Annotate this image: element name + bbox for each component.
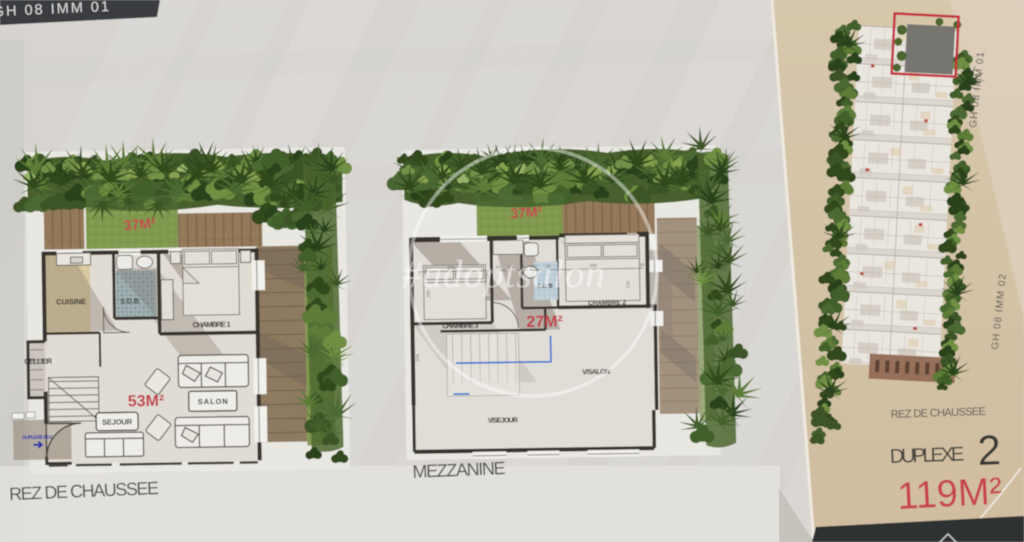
svg-text:37M²: 37M²	[123, 215, 156, 234]
svg-text:MEZZANINE: MEZZANINE	[412, 458, 506, 482]
svg-text:27M²: 27M²	[526, 313, 563, 331]
svg-text:2: 2	[977, 426, 1002, 474]
svg-text:V/SEJOUR: V/SEJOUR	[488, 417, 518, 424]
svg-text:#adoptsalon: #adoptsalon	[402, 253, 606, 296]
svg-text:270: 270	[626, 280, 631, 288]
svg-text:SALON: SALON	[198, 397, 228, 406]
svg-text:CHAMBRE 1: CHAMBRE 1	[193, 320, 231, 330]
svg-text:CELLIER: CELLIER	[24, 357, 53, 366]
svg-text:37M²: 37M²	[510, 203, 543, 221]
svg-text:CUISINE: CUISINE	[56, 297, 86, 306]
svg-text:S.D.B: S.D.B	[120, 298, 139, 305]
svg-text:SEJOUR: SEJOUR	[102, 417, 133, 426]
svg-text:208: 208	[415, 354, 420, 362]
svg-text:30: 30	[639, 262, 645, 267]
svg-text:CHAMBRE 3: CHAMBRE 3	[442, 323, 478, 331]
svg-text:DUPLEXE: DUPLEXE	[889, 443, 966, 468]
svg-text:53M²: 53M²	[128, 393, 165, 411]
svg-text:DUPLEXE A2-2: DUPLEXE A2-2	[22, 435, 52, 441]
svg-text:CHAMBRE 2: CHAMBRE 2	[588, 299, 626, 307]
